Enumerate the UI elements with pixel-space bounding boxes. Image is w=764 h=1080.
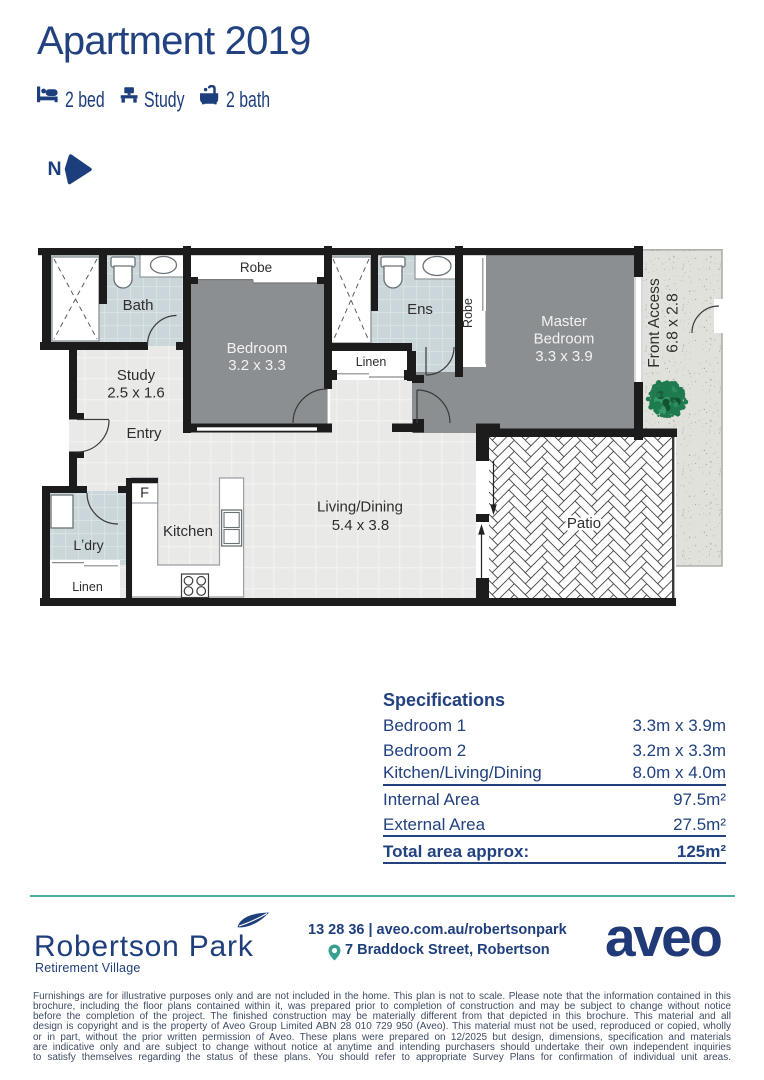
svg-text:3.2 x 3.3: 3.2 x 3.3 xyxy=(228,357,286,374)
svg-text:Patio: Patio xyxy=(567,515,601,532)
svg-text:Kitchen: Kitchen xyxy=(163,523,213,540)
svg-text:Linen: Linen xyxy=(356,355,387,369)
svg-text:Living/Dining: Living/Dining xyxy=(317,499,403,516)
svg-text:2.5 x 1.6: 2.5 x 1.6 xyxy=(107,385,165,402)
svg-text:3.3 x 3.9: 3.3 x 3.9 xyxy=(535,348,593,365)
svg-text:Bath: Bath xyxy=(123,297,154,314)
svg-text:5.4 x 3.8: 5.4 x 3.8 xyxy=(332,517,390,534)
svg-text:Robe: Robe xyxy=(240,260,272,275)
svg-text:Lʼdry: Lʼdry xyxy=(73,537,103,553)
svg-text:Study: Study xyxy=(117,367,156,384)
svg-text:6.8 x 2.8: 6.8 x 2.8 xyxy=(665,293,682,352)
svg-text:F: F xyxy=(140,486,149,502)
svg-text:Entry: Entry xyxy=(126,425,162,442)
svg-text:Master: Master xyxy=(541,313,587,330)
svg-text:Ens: Ens xyxy=(407,301,433,318)
svg-text:Linen: Linen xyxy=(72,580,103,594)
svg-text:Robe: Robe xyxy=(461,298,475,328)
svg-text:Bedroom: Bedroom xyxy=(227,340,288,357)
svg-text:Front Access: Front Access xyxy=(646,278,663,368)
svg-text:Bedroom: Bedroom xyxy=(534,331,595,348)
